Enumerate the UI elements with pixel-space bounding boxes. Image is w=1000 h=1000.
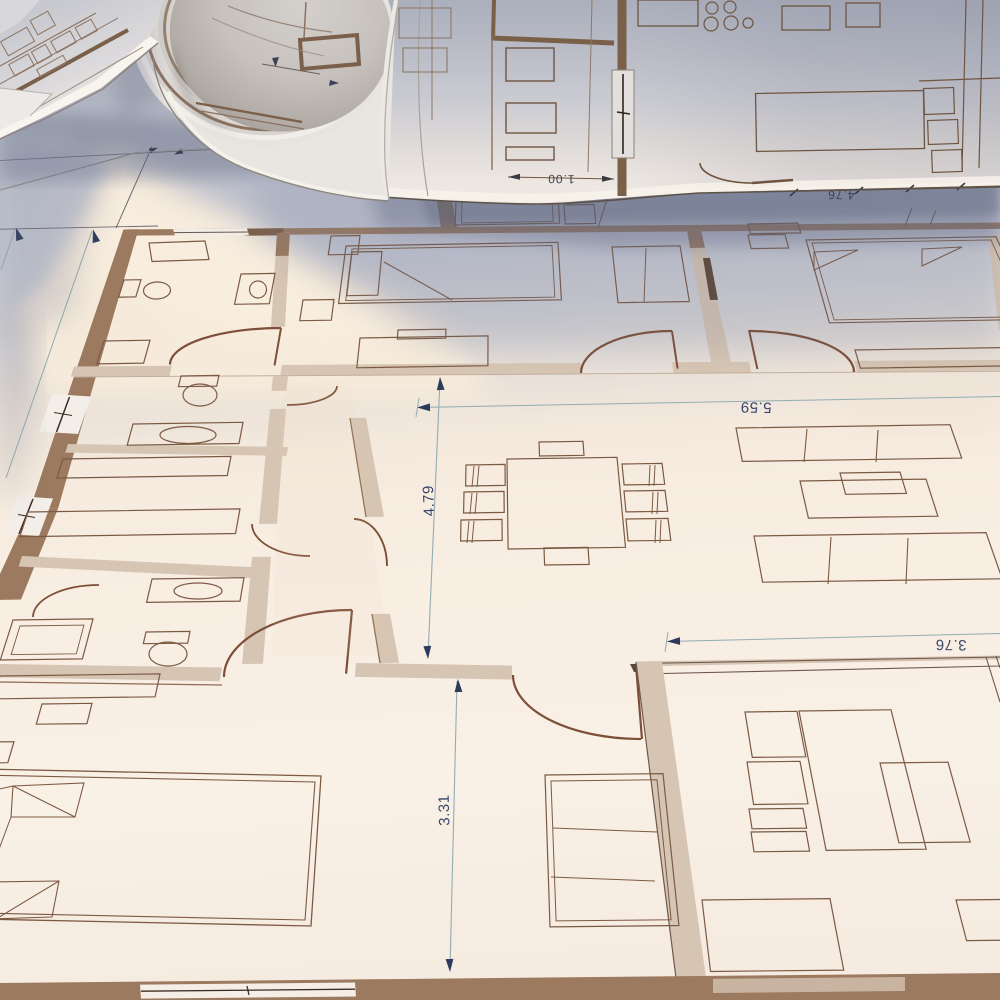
svg-text:3.31: 3.31 <box>436 794 454 826</box>
svg-text:3.76: 3.76 <box>935 636 966 654</box>
svg-text:4.79: 4.79 <box>420 485 438 517</box>
svg-text:1.00: 1.00 <box>547 172 575 186</box>
svg-text:5.59: 5.59 <box>740 398 771 416</box>
